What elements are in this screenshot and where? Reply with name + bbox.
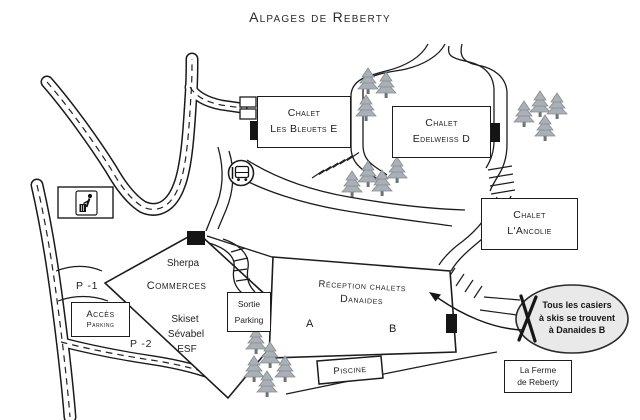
callout-text: Tous les casiers à skis se trouvent à Da… — [533, 299, 621, 337]
commerces-entrance — [187, 231, 205, 245]
acces-parking-box: Accès Parking — [71, 302, 130, 337]
pine-tree-icon — [387, 157, 407, 183]
chalet-ancolie-sub: L'Ancolie — [507, 224, 552, 240]
chalet-bleuets-sub: Les Bleuets E — [270, 122, 337, 138]
callout-line1: Tous les casiers — [533, 299, 621, 312]
pine-tree-icon — [535, 115, 555, 141]
pine-tree-icon — [376, 72, 396, 98]
reception-unit-b: B — [389, 323, 396, 335]
commerces-name: Commerces — [124, 280, 229, 292]
pine-tree-icon — [275, 356, 295, 382]
chalet-bleuets-name: Chalet — [288, 106, 321, 122]
pine-tree-icon — [372, 170, 392, 196]
ferme-line1: La Ferme — [520, 365, 556, 376]
pine-tree-icon — [342, 171, 362, 197]
pine-tree-icon — [530, 91, 550, 117]
callout-line3: à Danaides B — [533, 324, 621, 337]
page-title: Alpages de Reberty — [0, 9, 640, 25]
commerces-tenant-skiset: Skiset — [160, 314, 210, 325]
sortie-line1: Sortie — [238, 296, 260, 312]
acces-line2: Parking — [87, 320, 115, 330]
ferme-box: La Ferme de Reberty — [504, 360, 572, 393]
ferme-line2: de Reberty — [517, 377, 559, 388]
reception-unit-a: A — [306, 318, 313, 330]
acces-line1: Accès — [86, 309, 114, 320]
chalet-edelweiss-name: Chalet — [425, 116, 458, 132]
sortie-parking-box: Sortie Parking — [227, 292, 271, 332]
commerces-tenant-sevabel: Sévabel — [158, 329, 214, 340]
resort-map: Alpages de Reberty Chalet Les Bleuets E … — [0, 0, 640, 420]
sortie-line2: Parking — [235, 312, 264, 328]
pine-tree-icon — [358, 68, 378, 94]
bus-stop-icon — [229, 161, 254, 186]
pine-tree-icon — [358, 161, 378, 187]
waste-disposal-icon — [58, 187, 113, 218]
parking-level-2-label: P -2 — [130, 338, 152, 350]
reception-entrance — [446, 314, 457, 333]
commerces-tenant-esf: ESF — [167, 344, 207, 355]
pine-tree-icon — [356, 95, 376, 121]
chalet-edelweiss-sub: Edelweiss D — [413, 132, 471, 148]
parking-level-1-label: P -1 — [76, 280, 98, 292]
callout-line2: à skis se trouvent — [533, 312, 621, 325]
commerces-tenant-sherpa: Sherpa — [158, 258, 208, 269]
chalet-edelweiss-box: Chalet Edelweiss D — [392, 106, 491, 158]
chalet-ancolie-name: Chalet — [513, 208, 546, 224]
chalet-ancolie-box: Chalet L'Ancolie — [481, 198, 578, 250]
pine-tree-icon — [514, 101, 534, 127]
chalet-bleuets-box: Chalet Les Bleuets E — [257, 96, 351, 148]
pine-tree-icon — [547, 93, 567, 119]
